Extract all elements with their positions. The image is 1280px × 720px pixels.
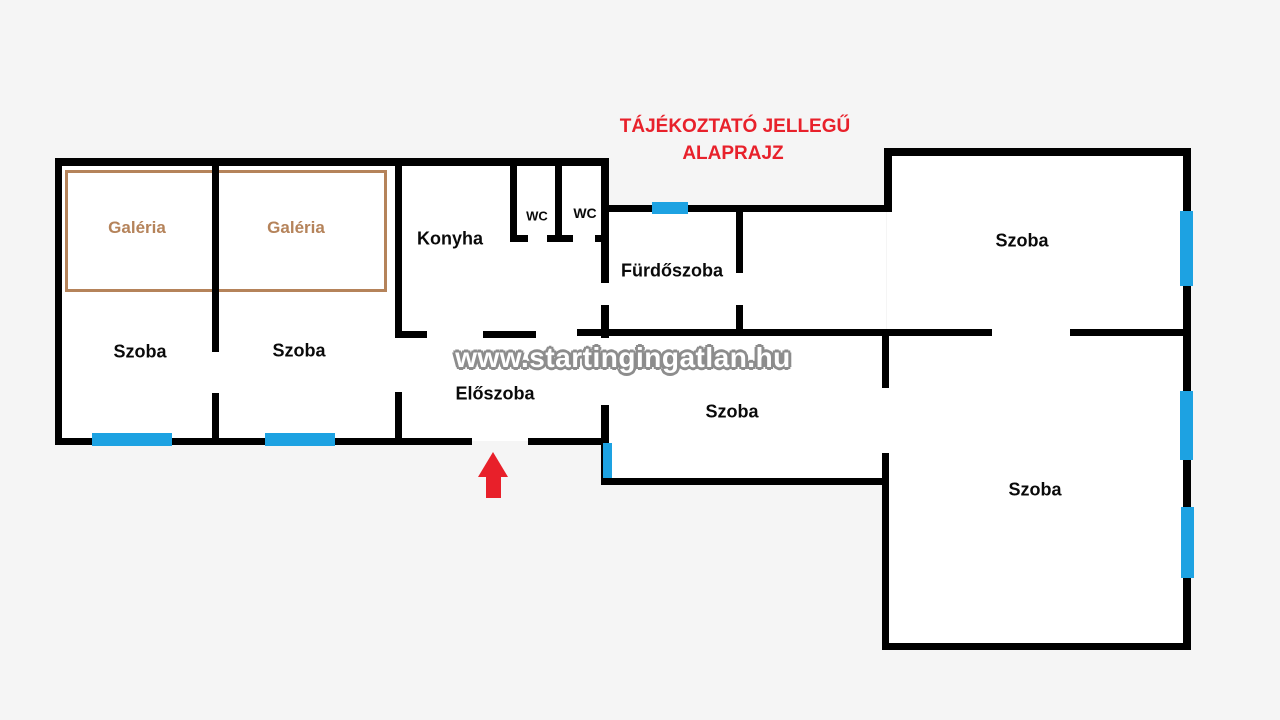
wall bbox=[510, 235, 528, 242]
wall bbox=[55, 158, 62, 445]
wall bbox=[212, 393, 219, 445]
floor-plan: TÁJÉKOZTATÓ JELLEGŰ ALAPRAJZ Galéria Gal… bbox=[0, 0, 1280, 720]
wall bbox=[736, 305, 743, 331]
window-marker bbox=[1180, 211, 1193, 286]
entrance-arrow-icon bbox=[478, 452, 508, 477]
room-label-szoba-top-right: Szoba bbox=[995, 231, 1048, 252]
room-label-szoba-mid-left: Szoba bbox=[272, 341, 325, 362]
window-marker bbox=[92, 433, 172, 446]
wall bbox=[528, 438, 608, 445]
wall bbox=[510, 158, 517, 242]
wall bbox=[483, 331, 536, 338]
wall bbox=[1070, 329, 1191, 336]
room-label-wc-right: WC bbox=[573, 205, 596, 221]
wall bbox=[547, 235, 573, 242]
wall bbox=[395, 392, 402, 445]
room-label-szoba-bottom-right: Szoba bbox=[1008, 480, 1061, 501]
window-marker bbox=[1181, 507, 1194, 578]
room-label-wc-left: WC bbox=[526, 209, 548, 224]
wall bbox=[395, 158, 402, 338]
wall bbox=[736, 212, 743, 273]
wall bbox=[577, 329, 992, 336]
watermark-text: www.startingingatlan.hu bbox=[455, 342, 791, 374]
wall bbox=[884, 148, 892, 212]
window-marker bbox=[265, 433, 335, 446]
wall bbox=[212, 158, 219, 352]
wall bbox=[601, 158, 609, 283]
plan-disclaimer-title-line2: ALAPRAJZ bbox=[682, 143, 783, 165]
window-marker bbox=[652, 202, 688, 214]
wall bbox=[601, 478, 889, 485]
wall bbox=[884, 148, 1191, 156]
room-label-eloszoba: Előszoba bbox=[455, 384, 534, 405]
window-marker bbox=[603, 443, 612, 478]
plan-disclaimer-title-line1: TÁJÉKOZTATÓ JELLEGŰ bbox=[620, 116, 850, 138]
entrance-arrow-stem bbox=[486, 475, 501, 498]
room-label-furdoszoba: Fürdőszoba bbox=[621, 261, 723, 282]
room-label-galeria-right: Galéria bbox=[267, 218, 325, 238]
wall bbox=[882, 643, 1191, 650]
wall bbox=[395, 331, 427, 338]
wall bbox=[55, 158, 608, 166]
wall bbox=[882, 453, 889, 650]
room-label-szoba-middle: Szoba bbox=[705, 402, 758, 423]
wall bbox=[882, 336, 889, 388]
wall bbox=[606, 205, 886, 212]
wall bbox=[555, 158, 562, 235]
room-label-galeria-left: Galéria bbox=[108, 218, 166, 238]
room-label-konyha: Konyha bbox=[417, 229, 483, 250]
room-label-szoba-left: Szoba bbox=[113, 342, 166, 363]
window-marker bbox=[1180, 391, 1193, 460]
